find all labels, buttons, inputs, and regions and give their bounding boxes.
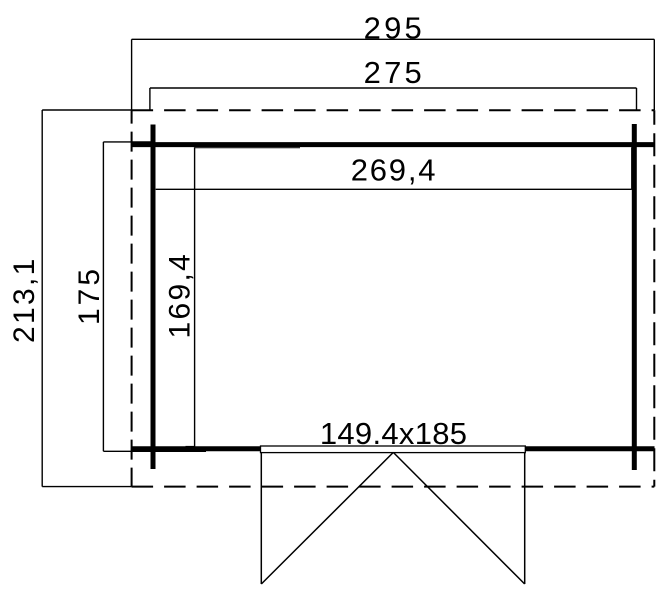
svg-text:213,1: 213,1 <box>8 256 41 343</box>
svg-text:269,4: 269,4 <box>351 153 438 188</box>
svg-text:175: 175 <box>73 266 106 325</box>
svg-text:275: 275 <box>364 55 425 90</box>
svg-text:295: 295 <box>364 10 425 45</box>
svg-text:149.4x185: 149.4x185 <box>320 416 468 451</box>
svg-text:169,4: 169,4 <box>163 252 196 339</box>
